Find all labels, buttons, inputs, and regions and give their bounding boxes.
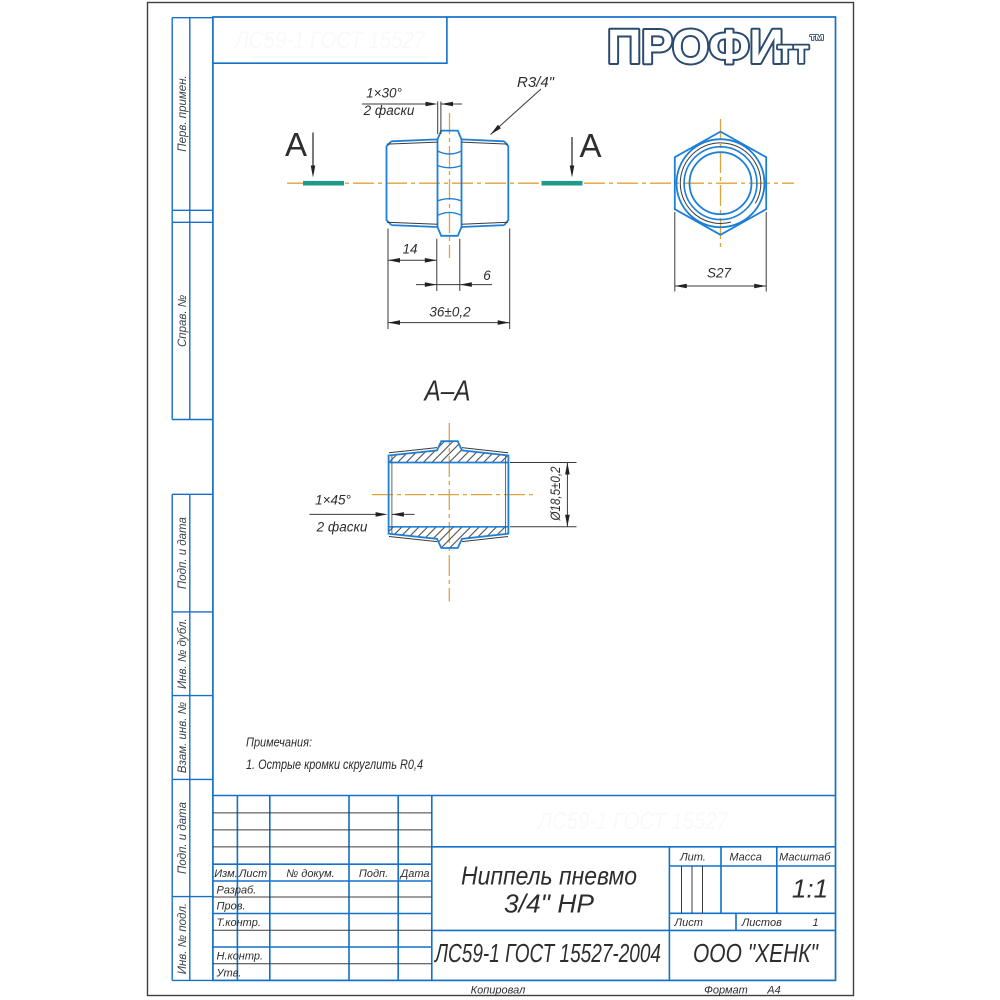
svg-text:Справ. №: Справ. № [177,294,189,347]
svg-text:Инв. № подл.: Инв. № подл. [177,903,189,974]
svg-text:1×45°: 1×45° [315,493,351,508]
svg-text:Лист: Лист [674,917,703,929]
svg-text:Т.контр.: Т.контр. [217,917,261,929]
svg-text:Лит.: Лит. [679,852,706,864]
svg-text:ЛС59-1 ГОСТ 15527: ЛС59-1 ГОСТ 15527 [536,808,729,835]
svg-text:Масштаб: Масштаб [779,852,831,864]
svg-text:S27: S27 [707,266,732,281]
svg-text:А–А: А–А [423,376,471,408]
svg-text:Примечания:: Примечания: [246,735,312,750]
svg-text:Инв. № дубл.: Инв. № дубл. [177,618,189,689]
svg-text:6: 6 [483,268,491,283]
svg-text:Изм.: Изм. [214,868,237,880]
svg-text:Формат: Формат [704,985,748,997]
svg-text:Ø18,5±0,2: Ø18,5±0,2 [548,466,563,521]
svg-text:Лист: Лист [238,868,267,880]
svg-text:Дата: Дата [398,868,429,880]
svg-text:Перв. примен.: Перв. примен. [177,75,189,151]
svg-text:Масса: Масса [729,852,762,864]
svg-text:Ниппель пневмо: Ниппель пневмо [461,861,637,891]
svg-text:№ докум.: № докум. [286,868,334,880]
svg-text:Подп. и дата: Подп. и дата [177,802,189,874]
svg-text:2 фаски: 2 фаски [316,520,368,535]
svg-text:14: 14 [402,242,417,257]
svg-text:R3/4": R3/4" [517,74,555,91]
svg-text:ПРОФИ: ПРОФИ [607,21,783,74]
svg-text:Пров.: Пров. [217,901,246,913]
svg-text:1×30°: 1×30° [366,86,402,101]
svg-text:ООО "ХЕНК": ООО "ХЕНК" [693,938,819,968]
svg-text:Листов: Листов [741,917,782,929]
svg-text:Подп.: Подп. [359,868,388,880]
svg-text:™: ™ [809,33,825,50]
svg-text:Подп. и дата: Подп. и дата [177,517,189,589]
svg-text:1: 1 [812,917,818,929]
svg-text:ЛС59-1 ГОСТ 15527: ЛС59-1 ГОСТ 15527 [233,27,426,54]
svg-text:36±0,2: 36±0,2 [429,305,471,320]
svg-text:Копировал: Копировал [471,985,526,997]
svg-text:А4: А4 [766,985,780,997]
svg-text:А: А [285,126,307,163]
svg-text:2 фаски: 2 фаски [363,103,415,118]
svg-text:ЛС59-1 ГОСТ 15527-2004: ЛС59-1 ГОСТ 15527-2004 [434,938,661,968]
svg-text:Н.контр.: Н.контр. [217,951,264,963]
svg-text:тт: тт [777,33,809,70]
svg-text:Взам. инв. №: Взам. инв. № [177,701,189,773]
svg-text:Разраб.: Разраб. [217,884,257,896]
svg-text:Утв.: Утв. [216,967,242,979]
svg-text:3/4" НР: 3/4" НР [504,889,595,919]
svg-text:А: А [579,127,601,164]
svg-text:1:1: 1:1 [792,874,828,904]
svg-text:1. Острые кромки скруглить R0,: 1. Острые кромки скруглить R0,4 [246,757,423,772]
